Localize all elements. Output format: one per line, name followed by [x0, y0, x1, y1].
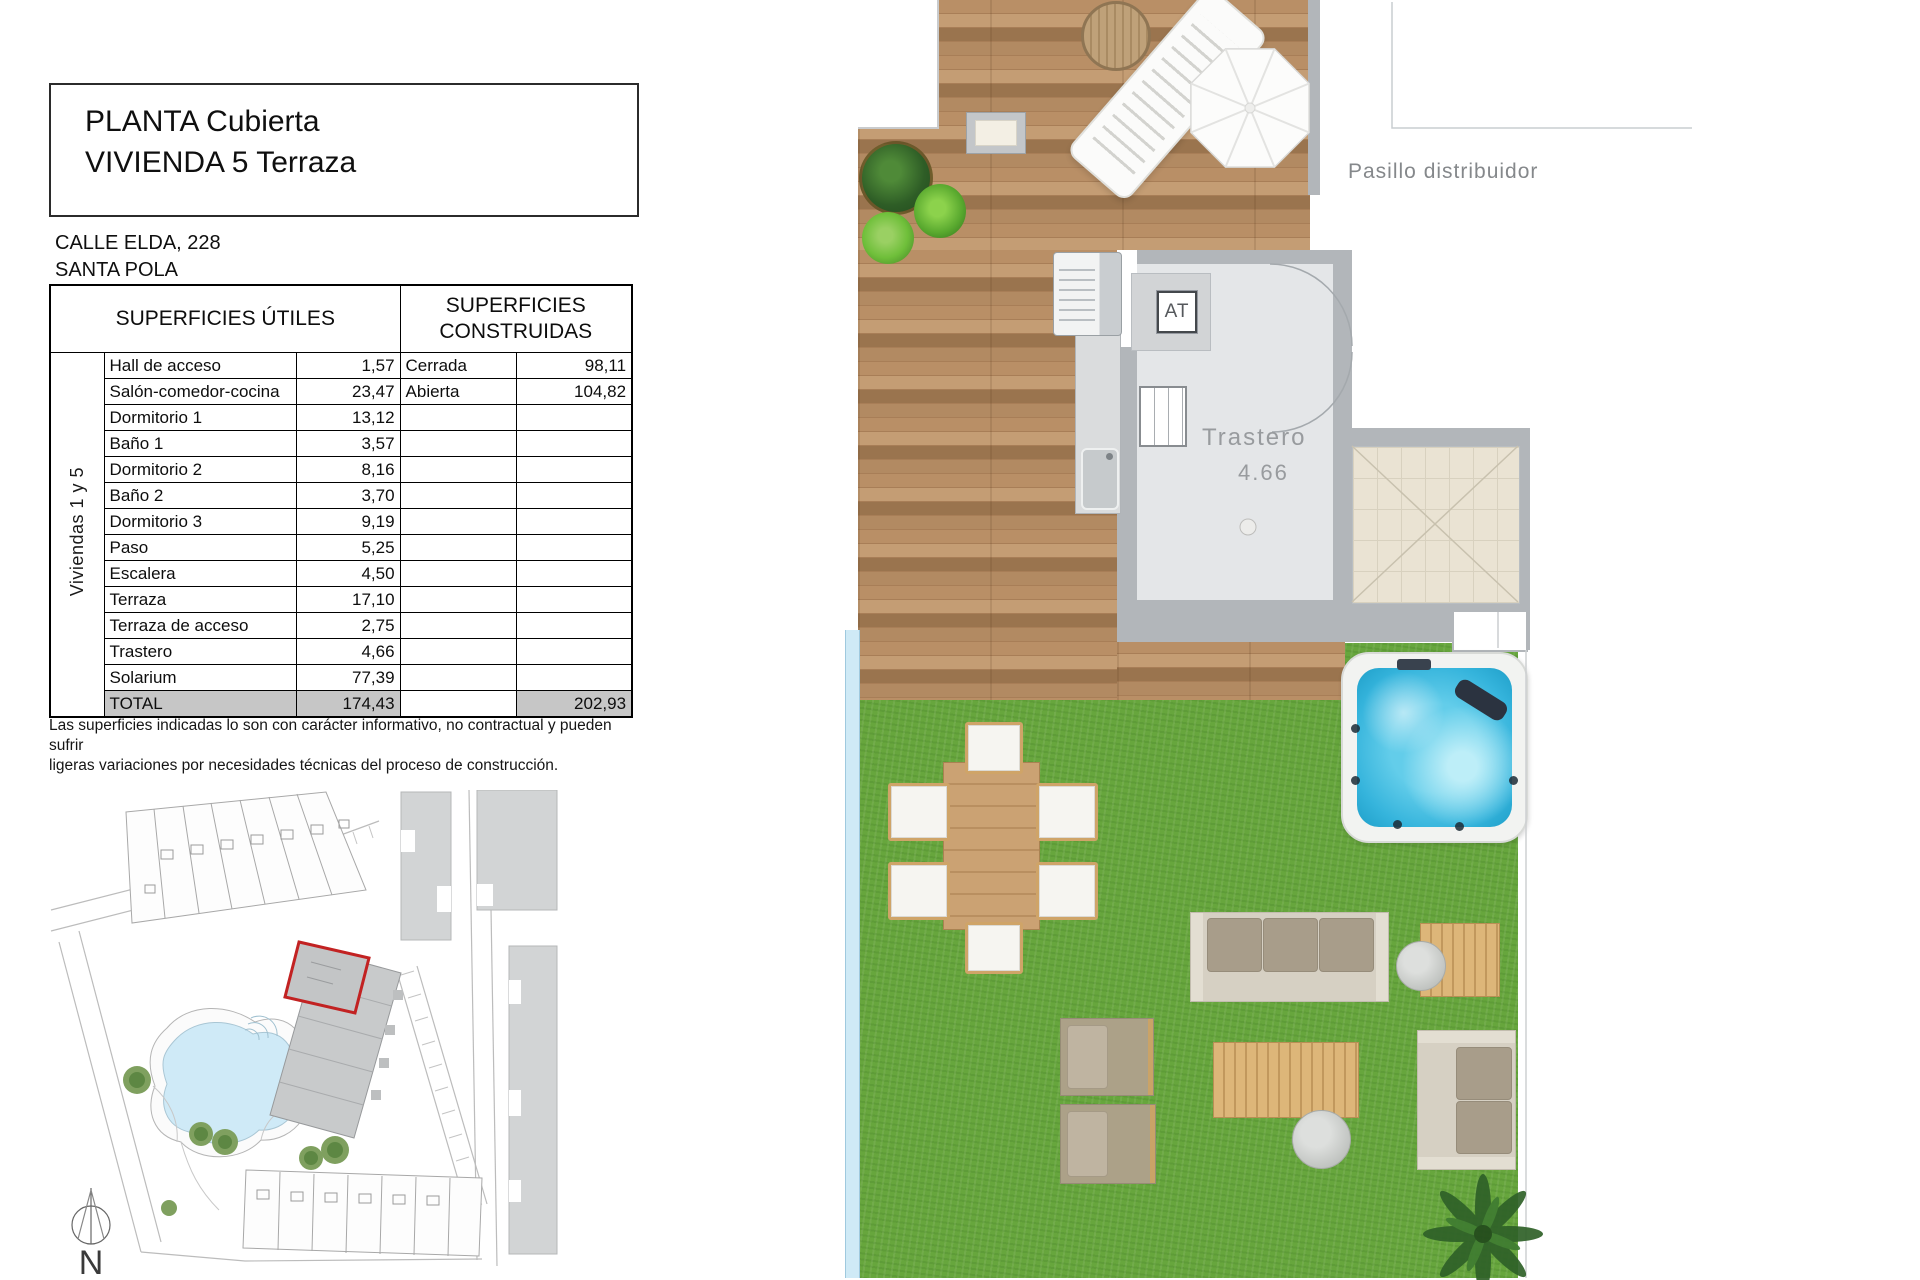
table-row: Viviendas 1 y 5 Hall de acceso 1,57 Cerr…: [50, 353, 632, 379]
site-plan: N: [49, 790, 625, 1280]
plan-boundary-notch: [858, 0, 939, 129]
at-unit-box: AT: [1157, 291, 1197, 333]
plan-title-line1: PLANTA Cubierta: [85, 101, 637, 142]
title-block: PLANTA Cubierta VIVIENDA 5 Terraza: [49, 83, 639, 217]
deck-terrace-lower: [1117, 640, 1345, 700]
dining-table: [943, 762, 1040, 930]
dining-chair: [1036, 862, 1098, 920]
townhouses-top: [126, 792, 366, 923]
wall-stairs-top: [1352, 428, 1530, 446]
doormat: [966, 112, 1026, 154]
row-built-value: 98,11: [516, 353, 632, 379]
wall-opening-box: [1452, 610, 1528, 652]
stairs: [1352, 446, 1520, 604]
table-total-row: TOTAL 174,43 202,93: [50, 691, 632, 718]
row-built-name: Cerrada: [400, 353, 516, 379]
pasillo-label: Pasillo distribuidor: [1348, 160, 1538, 184]
disclaimer-note: Las superficies indicadas lo son con car…: [49, 716, 649, 776]
trastero-label: Trastero: [1202, 424, 1306, 452]
at-label: AT: [1165, 301, 1190, 323]
table-row: Terraza de acceso2,75: [50, 613, 632, 639]
table-row: Dormitorio 28,16: [50, 457, 632, 483]
potted-plant-icon: [914, 184, 966, 238]
jacuzzi-panel: [1397, 659, 1431, 670]
pool-water: [163, 1022, 298, 1143]
dining-chair: [888, 783, 950, 841]
table-row: Paso5,25: [50, 535, 632, 561]
potted-plant-icon: [862, 212, 914, 264]
ac-unit: [1053, 252, 1122, 336]
table-row: Solarium77,39: [50, 665, 632, 691]
total-utiles: 174,43: [296, 691, 400, 718]
glass-screen: [845, 630, 860, 1278]
total-label: TOTAL: [104, 691, 296, 718]
stone-coffee-table: [1292, 1110, 1351, 1169]
trastero-area-label: 4.66: [1238, 460, 1289, 486]
table-row: Dormitorio 39,19: [50, 509, 632, 535]
total-construidas: 202,93: [516, 691, 632, 718]
wall-top: [1137, 250, 1352, 264]
plan-title-line2: VIVIENDA 5 Terraza: [85, 142, 637, 183]
table-row: Baño 13,57: [50, 431, 632, 457]
address-city: SANTA POLA: [55, 257, 221, 284]
north-label: N: [79, 1244, 104, 1280]
duct-shaft: [1139, 386, 1187, 447]
table-row: Baño 23,70: [50, 483, 632, 509]
table-row: Salón-comedor-cocina23,47Abierta104,82: [50, 379, 632, 405]
dining-chair: [965, 722, 1023, 774]
dining-chair: [1036, 783, 1098, 841]
row-value: 1,57: [296, 353, 400, 379]
address-street: CALLE ELDA, 228: [55, 230, 221, 257]
sofa-two-seat: [1417, 1030, 1516, 1170]
round-table: [1081, 1, 1151, 71]
north-arrow: [72, 1188, 110, 1244]
faucet-icon: [1106, 453, 1113, 460]
sink: [1081, 448, 1119, 510]
plan-sheet: PLANTA Cubierta VIVIENDA 5 Terraza CALLE…: [0, 0, 1920, 1280]
table-row: Terraza17,10: [50, 587, 632, 613]
group-label-cell: Viviendas 1 y 5: [50, 353, 104, 718]
dining-chair: [965, 922, 1023, 974]
highlighted-unit: [285, 942, 369, 1013]
header-construidas: SUPERFICIES CONSTRUIDAS: [400, 285, 632, 353]
surfaces-table: SUPERFICIES ÚTILES SUPERFICIES CONSTRUID…: [49, 284, 633, 718]
table-row: Dormitorio 113,12: [50, 405, 632, 431]
sofa-three-seat: [1190, 912, 1389, 1002]
townhouses-bottom: [243, 1170, 482, 1256]
header-utiles: SUPERFICIES ÚTILES: [50, 285, 400, 353]
jacuzzi: [1341, 652, 1528, 843]
wall-right: [1333, 250, 1352, 612]
ac-vents: [1059, 261, 1095, 327]
palm-plant-icon: [1408, 1168, 1558, 1280]
table-row: Escalera4,50: [50, 561, 632, 587]
address-block: CALLE ELDA, 228 SANTA POLA: [55, 230, 221, 284]
coffee-table: [1213, 1042, 1359, 1118]
dining-chair: [888, 862, 950, 920]
parasol: [1180, 38, 1320, 178]
row-name: Hall de acceso: [104, 353, 296, 379]
armchair: [1060, 1018, 1154, 1096]
surfaces-table-header: SUPERFICIES ÚTILES SUPERFICIES CONSTRUID…: [50, 285, 632, 353]
armchair: [1060, 1104, 1156, 1184]
stone-side-table: [1396, 941, 1446, 991]
table-row: Trastero4,66: [50, 639, 632, 665]
